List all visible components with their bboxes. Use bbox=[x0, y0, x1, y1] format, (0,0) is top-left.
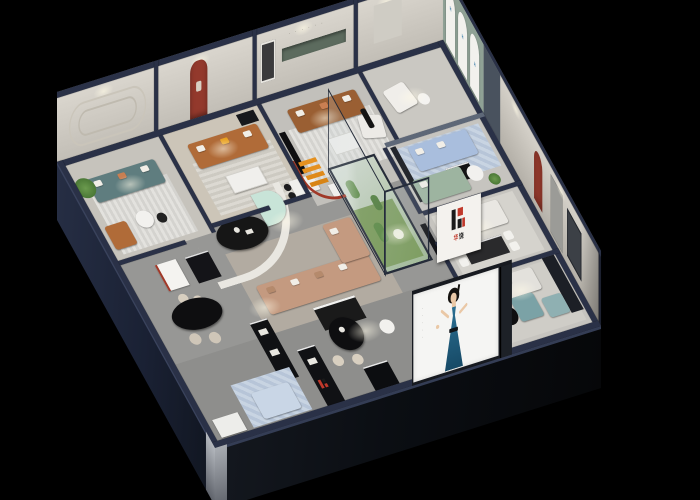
arch-logo: H bbox=[458, 26, 467, 48]
pillow-tan bbox=[266, 286, 276, 294]
brand-logo-text: 华饶 bbox=[446, 228, 471, 246]
dining-stool bbox=[207, 331, 224, 345]
pillow bbox=[342, 95, 352, 103]
display-item bbox=[258, 328, 269, 336]
niche-vase bbox=[196, 80, 201, 92]
pillow bbox=[242, 130, 252, 138]
red-frame-shelf bbox=[155, 259, 190, 291]
black-oval-dining-table bbox=[165, 292, 229, 336]
poster-woman-arm-right bbox=[459, 302, 468, 314]
pillow-tan bbox=[314, 271, 324, 279]
pillow bbox=[196, 145, 206, 153]
counter-brand-mark bbox=[318, 377, 332, 388]
display-item bbox=[307, 357, 318, 365]
arch-logo: H bbox=[446, 0, 455, 21]
arch-logo: H bbox=[470, 54, 479, 76]
poster-woman-hand-left bbox=[436, 324, 439, 329]
pillow-yellow bbox=[220, 137, 230, 145]
tableware bbox=[245, 228, 254, 234]
tableware bbox=[338, 326, 346, 333]
atrium-glass-front bbox=[384, 177, 429, 275]
brand-h-mark bbox=[452, 206, 467, 231]
wall-end bbox=[154, 60, 158, 131]
wall-end bbox=[354, 0, 358, 68]
pillow bbox=[436, 141, 446, 149]
framed-panel bbox=[374, 0, 402, 44]
dining-stool bbox=[187, 332, 204, 346]
corner-trim bbox=[215, 444, 227, 500]
wall-mirror bbox=[261, 39, 276, 84]
pillow bbox=[338, 263, 348, 271]
pillow bbox=[290, 278, 300, 286]
display-item bbox=[269, 348, 280, 356]
wall-end bbox=[253, 29, 257, 100]
pillow bbox=[415, 147, 425, 155]
showroom-render: · · · · · · H H H bbox=[0, 0, 700, 500]
poster-woman-arm-left bbox=[440, 309, 449, 319]
pillow bbox=[140, 165, 150, 173]
dark-panel bbox=[500, 263, 512, 358]
pillow bbox=[329, 227, 339, 235]
pillow bbox=[295, 109, 305, 117]
red-arch-niche bbox=[534, 146, 542, 213]
poster-side-text: · · · · · bbox=[420, 307, 424, 358]
poster-woman-ponytail bbox=[456, 284, 460, 296]
tableware bbox=[233, 226, 241, 233]
pillow-orange bbox=[117, 172, 127, 180]
logo-char-2: 饶 bbox=[459, 231, 464, 241]
